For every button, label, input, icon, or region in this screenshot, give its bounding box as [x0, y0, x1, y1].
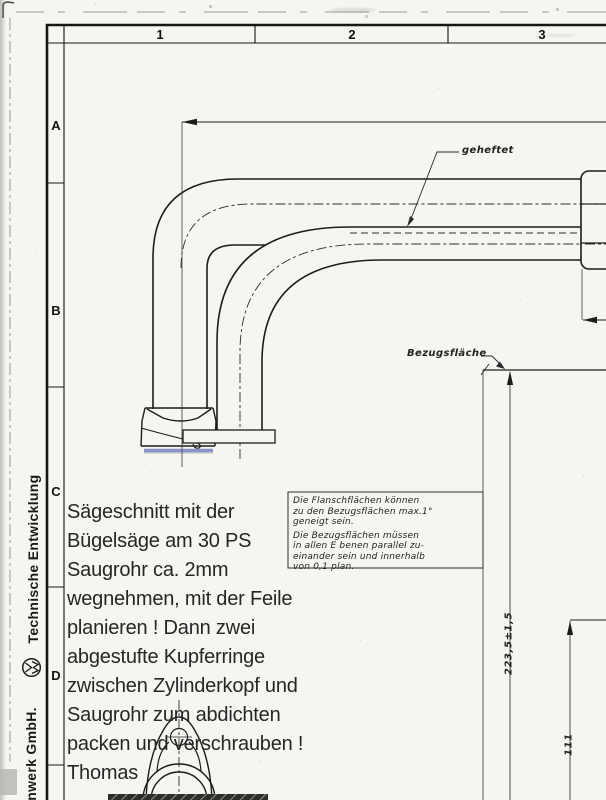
- paper-smudge: [330, 8, 376, 12]
- handwritten-line: planieren ! Dann zwei: [67, 614, 303, 643]
- tolerance-note-line: Die Bezugsflächen müssen: [293, 531, 479, 542]
- technical-drawing-sheet: 1 2 3 A B C D geheftet Bezugsfläche 223,…: [0, 0, 606, 800]
- datum-construction: [481, 356, 606, 800]
- sidebar-company-text: enwerk GmbH.: [23, 683, 39, 800]
- handwritten-line: Saugrohr zum abdichten: [67, 701, 303, 730]
- dim-223: [507, 371, 513, 800]
- tolerance-note-line: einander sein und innerhalb: [293, 552, 479, 563]
- handwritten-line: Saugrohr ca. 2mm: [67, 556, 303, 585]
- vw-logo-icon: [21, 657, 42, 678]
- handwritten-line: Bügelsäge am 30 PS: [67, 527, 303, 556]
- tolerance-note: Die Flanschflächen können zu den Bezugsf…: [293, 496, 479, 573]
- dim-top: [182, 119, 606, 467]
- grid-row-d: D: [48, 668, 64, 683]
- handwritten-line: Sägeschnitt mit der: [67, 498, 303, 527]
- dim-flange-face: [582, 269, 606, 323]
- grid-column-1: 1: [130, 27, 190, 42]
- grid-column-3: 3: [512, 27, 572, 42]
- tolerance-note-line: von 0,1 plan.: [293, 562, 479, 573]
- pipe-tube2: [217, 227, 581, 431]
- tolerance-note-line: in allen E benen parallel zu-: [293, 541, 479, 552]
- mounting-plate: [183, 430, 275, 443]
- handwritten-line: wegnehmen, mit der Feile: [67, 585, 303, 614]
- sidebar-department-text: Technische Entwicklung: [25, 464, 41, 654]
- weld-note-label: geheftet: [462, 145, 514, 156]
- weld-leader: [407, 152, 459, 227]
- grid-row-c: C: [48, 484, 64, 499]
- handwritten-line: abgestufte Kupferringe: [67, 643, 303, 672]
- scan-corner-artifact: [0, 769, 17, 795]
- tolerance-note-line: geneigt sein.: [293, 517, 479, 528]
- datum-label: Bezugsfläche: [407, 348, 487, 359]
- scan-edge-shadow: [0, 0, 6, 800]
- dim-height-text: 111: [564, 725, 575, 765]
- grid-row-a: A: [48, 118, 64, 133]
- ground-hatch-band: [108, 794, 268, 800]
- dim-111: [567, 620, 606, 800]
- tolerance-note-line: zu den Bezugsflächen max.1°: [293, 507, 479, 518]
- dim-overall-length-text: 223,5±1,5: [504, 599, 515, 689]
- handwritten-line: packen und verschrauben !: [67, 730, 303, 759]
- handwritten-line: zwischen Zylinderkopf und: [67, 672, 303, 701]
- grid-column-2: 2: [322, 27, 382, 42]
- handwritten-note: Sägeschnitt mit der Bügelsäge am 30 PS S…: [67, 498, 303, 788]
- end-flange: [581, 171, 606, 269]
- grid-row-b: B: [48, 303, 64, 318]
- paper-speckles: [0, 0, 1, 1]
- tolerance-note-line: Die Flanschflächen können: [293, 496, 479, 507]
- handwritten-line: Thomas: [67, 759, 303, 788]
